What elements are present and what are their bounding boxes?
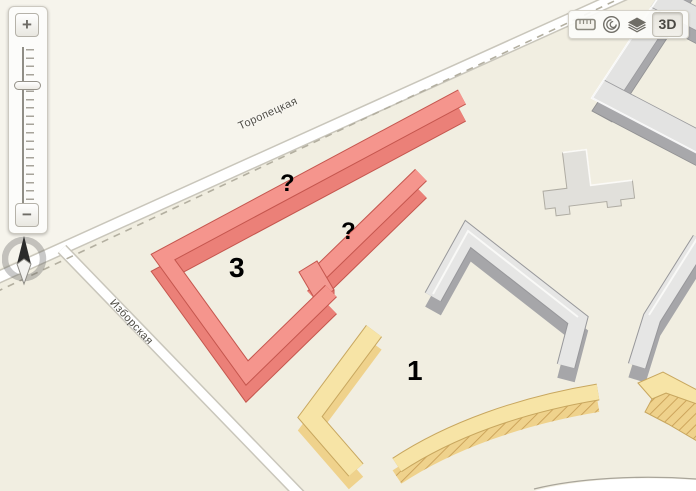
map-canvas[interactable]: Торопецкая Изборская ? ? 3 1 + − [0,0,696,491]
compass-control[interactable] [2,234,48,286]
map-graphics [0,0,696,491]
ruler-icon[interactable] [574,14,596,36]
zoom-out-button[interactable]: − [15,203,39,227]
zoom-slider-track[interactable] [22,47,24,209]
zoom-slider-handle[interactable] [14,81,41,90]
zoom-control: + − [8,6,48,234]
map-toolbar: 3D [568,10,689,39]
3d-mode-button[interactable]: 3D [652,12,683,37]
zoom-in-button[interactable]: + [15,13,39,37]
mirrors-icon[interactable] [600,14,622,36]
layers-icon[interactable] [626,14,648,36]
zoom-slider-ticks [26,49,34,207]
